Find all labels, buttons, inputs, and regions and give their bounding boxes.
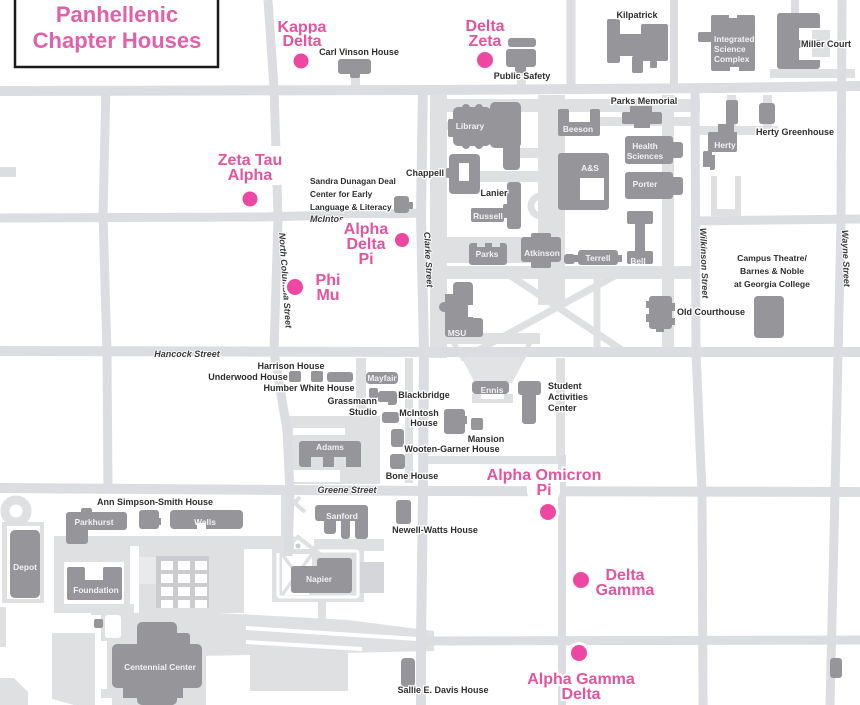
svg-text:Mu: Mu — [316, 287, 339, 304]
svg-text:Complex: Complex — [714, 54, 750, 64]
svg-text:Chappell: Chappell — [406, 168, 444, 178]
svg-text:Porter: Porter — [633, 179, 658, 189]
svg-text:Harrison House: Harrison House — [257, 361, 324, 371]
svg-text:Bone House: Bone House — [386, 471, 439, 481]
svg-text:Grassmann: Grassmann — [327, 396, 377, 406]
svg-text:Newell-Watts House: Newell-Watts House — [392, 525, 478, 535]
svg-text:Adams: Adams — [316, 442, 344, 452]
svg-text:Parks Memorial: Parks Memorial — [611, 96, 678, 106]
svg-text:Chapter Houses: Chapter Houses — [33, 28, 202, 53]
svg-text:A&S: A&S — [581, 163, 599, 173]
svg-text:Wooten-Garner House: Wooten-Garner House — [404, 444, 499, 454]
svg-text:Science: Science — [714, 44, 746, 54]
svg-text:Terrell: Terrell — [586, 253, 611, 263]
svg-text:Sandra Dunagan Deal: Sandra Dunagan Deal — [310, 176, 396, 186]
svg-text:Delta: Delta — [282, 33, 321, 50]
svg-text:Lanier: Lanier — [480, 188, 508, 198]
svg-text:Language & Literacy: Language & Literacy — [310, 202, 392, 212]
svg-text:Sallie E. Davis House: Sallie E. Davis House — [397, 685, 488, 695]
svg-text:Campus Theatre/: Campus Theatre/ — [737, 253, 807, 263]
svg-text:Gamma: Gamma — [596, 582, 655, 599]
svg-text:House: House — [410, 418, 438, 428]
svg-text:Depot: Depot — [13, 562, 37, 572]
svg-text:Pi: Pi — [536, 482, 551, 499]
svg-text:at Georgia College: at Georgia College — [734, 279, 810, 289]
svg-text:Alpha: Alpha — [228, 167, 273, 184]
svg-text:Barnes & Noble: Barnes & Noble — [740, 266, 804, 276]
svg-text:Wayne Street: Wayne Street — [840, 230, 852, 288]
svg-text:Miller Court: Miller Court — [801, 39, 851, 49]
svg-text:Hancock Street: Hancock Street — [154, 349, 221, 359]
svg-text:Carl Vinson House: Carl Vinson House — [319, 47, 399, 57]
svg-text:Sanford: Sanford — [326, 511, 358, 521]
svg-text:Studio: Studio — [349, 407, 377, 417]
svg-text:Bell: Bell — [630, 256, 645, 266]
svg-text:Humber White House: Humber White House — [263, 383, 354, 393]
svg-text:Ann Simpson-Smith House: Ann Simpson-Smith House — [97, 497, 213, 507]
svg-text:Activities: Activities — [548, 392, 588, 402]
svg-text:Beeson: Beeson — [563, 124, 593, 134]
svg-text:Mayfair: Mayfair — [367, 373, 397, 383]
svg-text:Panhellenic: Panhellenic — [56, 2, 178, 27]
svg-text:MSU: MSU — [448, 328, 467, 338]
svg-text:Parks: Parks — [476, 249, 499, 259]
svg-text:Mansion: Mansion — [468, 434, 505, 444]
svg-text:Atkinson: Atkinson — [524, 248, 560, 258]
svg-text:Pi: Pi — [358, 251, 373, 268]
svg-text:Zeta: Zeta — [469, 33, 502, 50]
svg-text:Centennial Center: Centennial Center — [124, 662, 196, 672]
svg-text:Russell: Russell — [473, 211, 503, 221]
svg-text:Blackbridge: Blackbridge — [398, 390, 450, 400]
svg-text:Center for Early: Center for Early — [310, 189, 373, 199]
svg-text:Ennis: Ennis — [481, 385, 504, 395]
svg-text:Greene Street: Greene Street — [317, 485, 377, 495]
svg-text:Health: Health — [632, 141, 658, 151]
svg-text:Center: Center — [548, 403, 577, 413]
svg-text:Kilpatrick: Kilpatrick — [616, 10, 658, 20]
svg-text:Public Safety: Public Safety — [494, 71, 551, 81]
svg-text:Herty Greenhouse: Herty Greenhouse — [756, 127, 834, 137]
svg-text:Herty: Herty — [714, 140, 736, 150]
svg-text:Parkhurst: Parkhurst — [74, 517, 113, 527]
svg-text:Sciences: Sciences — [627, 151, 664, 161]
svg-text:Wells: Wells — [194, 517, 216, 527]
svg-text:Foundation: Foundation — [73, 585, 119, 595]
svg-text:Student: Student — [548, 381, 582, 391]
svg-text:Delta: Delta — [561, 686, 600, 703]
svg-text:Old Courthouse: Old Courthouse — [677, 307, 745, 317]
svg-text:Integrated: Integrated — [714, 34, 755, 44]
svg-text:Library: Library — [456, 121, 485, 131]
svg-text:Napier: Napier — [306, 574, 333, 584]
svg-text:McIntosh: McIntosh — [399, 408, 439, 418]
svg-text:Underwood House: Underwood House — [208, 372, 288, 382]
